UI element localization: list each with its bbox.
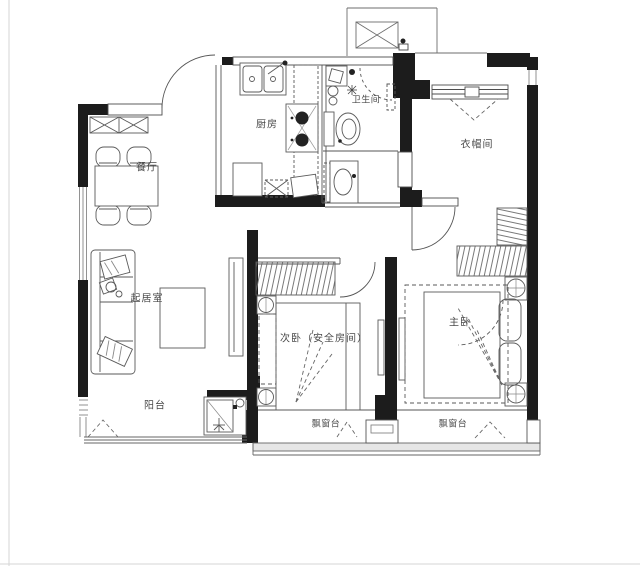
kitchen-sink (240, 61, 288, 96)
floor-plan-drawing (0, 0, 640, 571)
tv-panel-secondary (378, 320, 384, 375)
utility-icon (399, 39, 408, 51)
pillow-2 (499, 343, 521, 385)
room-label-cloakroom: 衣帽间 (461, 136, 494, 151)
wardrobe (256, 262, 335, 295)
sofa (91, 250, 135, 374)
entry-door-swing-dashes (450, 99, 498, 120)
room-label-bay-window-right: 飘窗台 (439, 417, 468, 430)
bed-pillow-dashed (259, 314, 276, 384)
master-suite-door-arc (412, 207, 455, 250)
washing-machine (326, 66, 347, 86)
drain-dot (349, 69, 355, 75)
nightstand-top (257, 296, 276, 314)
outdoor-platform (347, 8, 487, 56)
coffee-table (160, 288, 205, 348)
floor-plan-page: 餐厅 厨房 卫生间 衣帽间 起居室 阳台 次卧（安全房间） 主卧 飘窗台 飘窗台 (0, 0, 640, 571)
entry-door-arc (162, 55, 215, 108)
fridge (233, 163, 262, 196)
furniture-living (91, 250, 243, 374)
vanity-sink (330, 161, 358, 203)
room-label-master-bedroom: 主卧 (449, 314, 471, 329)
furniture-master-bedroom (399, 208, 527, 406)
secondary-bedroom-door-arc (340, 262, 375, 297)
tv-panel-master (399, 318, 405, 380)
basin-1 (328, 86, 338, 96)
entry-window-band (432, 85, 508, 99)
pillow-1 (499, 299, 521, 341)
room-label-bathroom: 卫生间 (352, 93, 381, 106)
bed-zone-dashed (405, 285, 508, 403)
wardrobe-a (497, 208, 527, 245)
room-label-kitchen: 厨房 (256, 116, 278, 131)
kitchen-stove (286, 104, 318, 152)
right-window (529, 70, 536, 85)
furniture-balcony (204, 397, 246, 435)
basin-2 (329, 97, 337, 105)
tilted-appliance (291, 174, 319, 197)
wardrobe-b (457, 246, 527, 276)
laundry-basin (204, 397, 246, 435)
nightstand-bottom (257, 388, 276, 406)
room-label-balcony: 阳台 (144, 397, 166, 412)
room-label-dining: 餐厅 (136, 159, 158, 174)
toilet (324, 112, 360, 146)
dining-cabinet (90, 117, 148, 133)
room-label-living: 起居室 (131, 290, 164, 305)
tv-console (229, 258, 243, 356)
bay-window-sills (253, 420, 540, 455)
crossed-cabinet (265, 180, 288, 197)
room-label-secondary-bedroom: 次卧（安全房间） (280, 330, 368, 345)
room-label-bay-window-left: 飘窗台 (312, 417, 341, 430)
furniture-bathroom (324, 66, 360, 203)
bed (276, 303, 360, 410)
